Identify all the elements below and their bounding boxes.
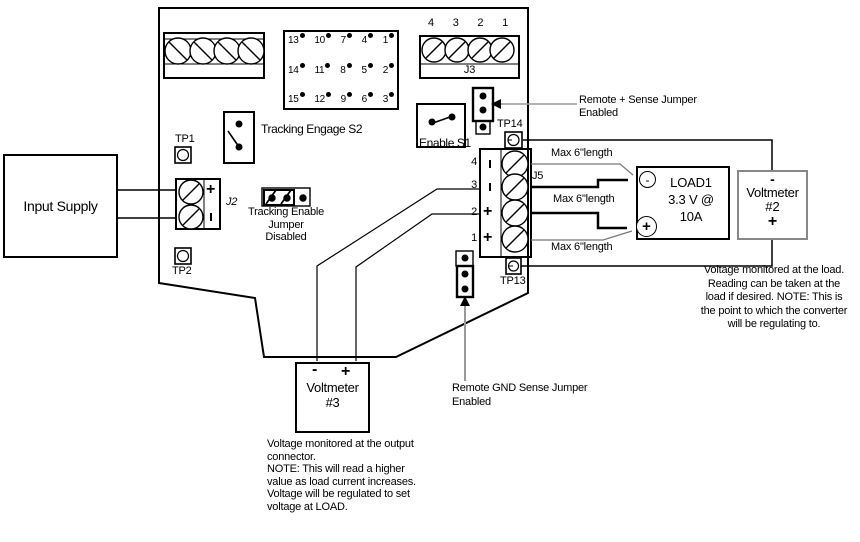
max-length-label: Max 6"length [551, 241, 612, 254]
j5-pin: 2 [465, 206, 477, 219]
pin-dot [368, 63, 373, 68]
header15-pin: 3 [383, 94, 388, 105]
pin-dot [368, 33, 373, 38]
voltmeter3-title: Voltmeter [297, 380, 368, 395]
wire-sense-minus [531, 164, 633, 175]
wire-load-minus [531, 180, 628, 187]
switch-s2-label: Tracking Engage S2 [261, 122, 362, 136]
j3-pin: 3 [453, 17, 459, 30]
j3-label: J3 [420, 64, 519, 77]
input-supply-label: Input Supply [23, 198, 97, 214]
pin-dot [300, 92, 305, 97]
load-spec: 10A [654, 208, 728, 225]
header15-pin: 1 [383, 35, 388, 46]
remote-plus-sense-label: Remote + Sense Jumper Enabled [579, 94, 697, 119]
j5-pin: 1 [465, 232, 477, 245]
load-plus-terminal: + [636, 216, 657, 237]
header15-pin: 4 [362, 35, 367, 46]
pin-dot [326, 33, 331, 38]
voltmeter3-note: Voltage monitored at the output connecto… [267, 438, 437, 513]
voltmeter2-plus: + [768, 214, 777, 230]
j3-pin: 2 [477, 17, 483, 30]
j5-pin: 4 [465, 156, 477, 169]
tp13-label: TP13 [500, 275, 526, 288]
wiring-diagram-canvas: Input Supply TP1 TP2 TP14 TP13 Tracking … [0, 0, 860, 542]
voltmeter3-number: #3 [297, 395, 368, 410]
voltmeter2-box: - Voltmeter #2 + [737, 170, 808, 240]
header15-pin: 11 [315, 65, 325, 76]
switch-s1-label: Enable S1 [419, 136, 471, 150]
pin-dot [389, 92, 394, 97]
header15-pin: 10 [314, 35, 325, 46]
j2-plus-mark: + [206, 183, 215, 197]
tracking-enable-jumper-label: Tracking Enable Jumper Disabled [246, 206, 326, 244]
j3-pin: 4 [428, 17, 434, 30]
header15-pin: 7 [341, 35, 346, 46]
voltmeter3-box: - + Voltmeter #3 [295, 362, 370, 433]
header15-pin: 6 [362, 94, 367, 105]
header15-pin: 14 [288, 65, 299, 76]
j5-plus-mark: + [483, 205, 492, 219]
load-spec: 3.3 V @ [654, 191, 728, 208]
wire-load-plus [531, 213, 627, 228]
voltmeter3-minus: - [312, 361, 317, 379]
voltmeter2-number: #2 [765, 200, 779, 214]
j2-label: J2 [226, 196, 237, 209]
header15-pin: 8 [340, 65, 345, 76]
max-length-label: Max 6"length [551, 147, 612, 160]
header15-pin: 15 [288, 94, 299, 105]
tp1-label: TP1 [175, 133, 195, 146]
j3-pin: 1 [502, 17, 508, 30]
j5-plus-mark: + [483, 231, 492, 245]
pin-dot [389, 33, 394, 38]
header15-pin: 5 [361, 65, 366, 76]
pin-dot [326, 92, 331, 97]
pin-dot [300, 63, 305, 68]
tp2-label: TP2 [172, 265, 192, 278]
pin-dot [368, 92, 373, 97]
header15-pin: 9 [341, 94, 346, 105]
header15-pin-grid: 13 10 7 4 1 14 11 8 5 2 15 12 9 6 3 [288, 35, 394, 105]
j5-pin: 3 [465, 179, 477, 192]
pin-dot [347, 33, 352, 38]
pin-dot [347, 63, 352, 68]
header15-pin: 13 [288, 35, 299, 46]
tp14-label: TP14 [497, 118, 523, 131]
remote-gnd-sense-label: Remote GND Sense Jumper Enabled [452, 381, 587, 409]
input-supply-box: Input Supply [3, 154, 118, 258]
header15-pin: 12 [314, 94, 325, 105]
voltmeter2-note: Voltage monitored at the load. Reading c… [688, 264, 860, 332]
load-name: LOAD1 [654, 174, 728, 191]
load-minus-terminal: - [639, 171, 656, 188]
voltmeter2-title: Voltmeter [746, 186, 798, 200]
header15-pin: 2 [383, 65, 388, 76]
j5-label: J5 [532, 170, 543, 183]
voltmeter3-plus: + [341, 363, 350, 381]
pin-dot [389, 63, 394, 68]
max-length-label: Max 6"length [553, 193, 614, 206]
pin-dot [325, 63, 330, 68]
pin-dot [347, 92, 352, 97]
pin-dot [300, 33, 305, 38]
j3-pin-numbers: 4 3 2 1 [428, 17, 508, 30]
wire-sense-plus [531, 231, 632, 240]
